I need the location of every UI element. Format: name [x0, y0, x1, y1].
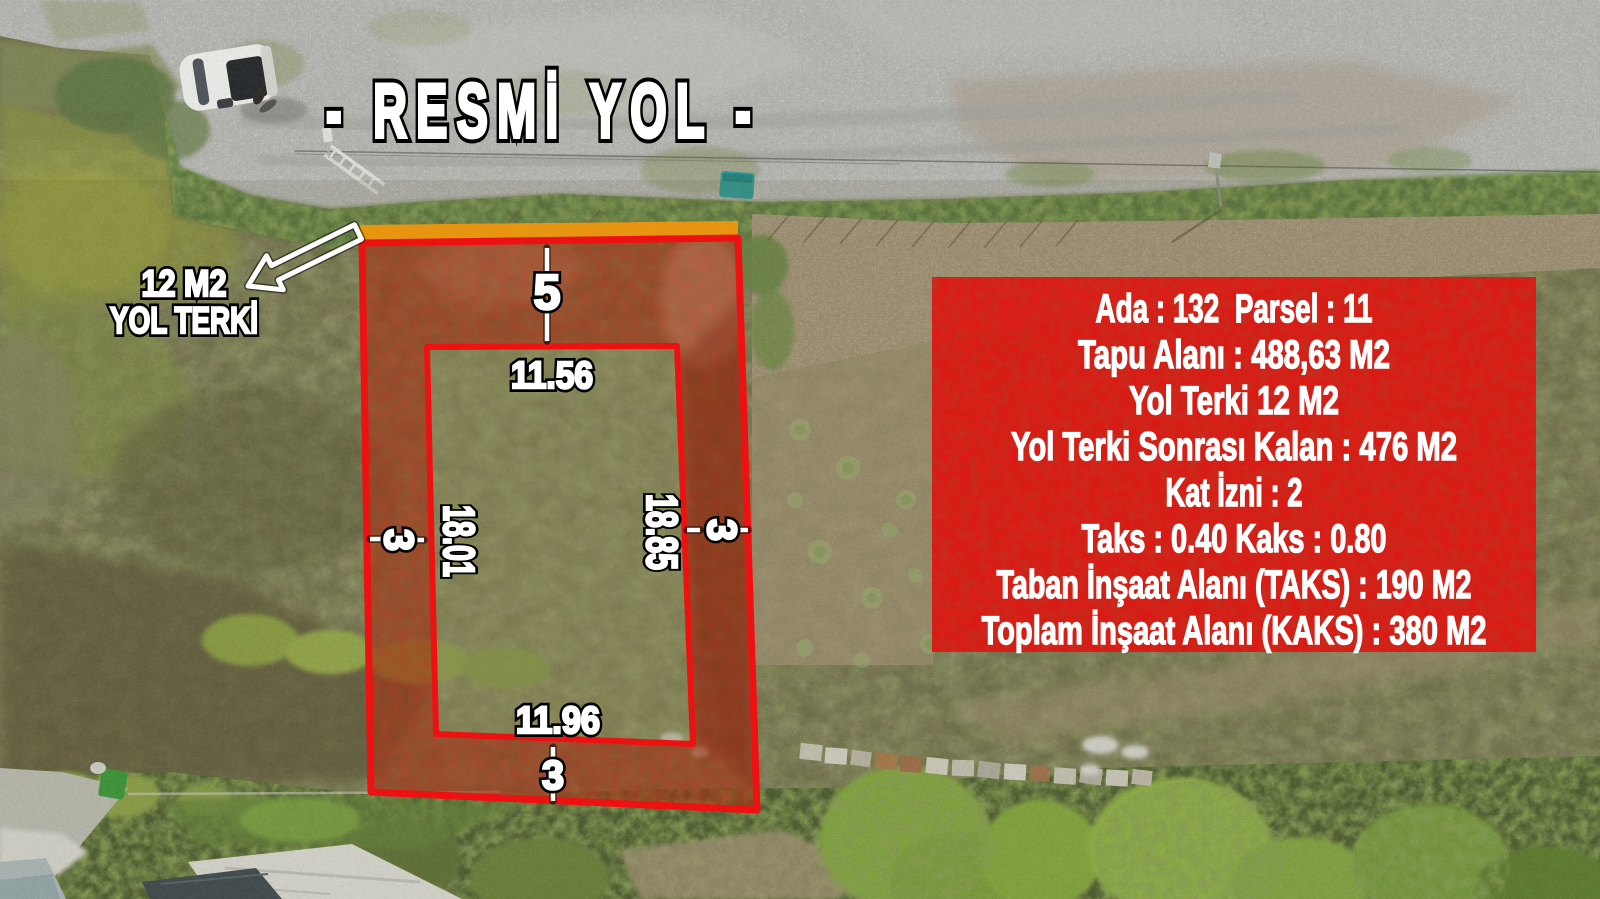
svg-text:Kat İzni : 2: Kat İzni : 2 [1166, 471, 1303, 515]
svg-text:Toplam İnşaat Alanı (KAKS) : 3: Toplam İnşaat Alanı (KAKS) : 380 M2 [982, 609, 1487, 653]
svg-text:5: 5 [534, 266, 561, 320]
svg-text:Tapu Alanı : 488,63 M2: Tapu Alanı : 488,63 M2 [1078, 333, 1390, 377]
svg-text:3: 3 [376, 529, 422, 551]
svg-text:18.01: 18.01 [434, 505, 483, 577]
svg-text:Yol Terki 12 M2: Yol Terki 12 M2 [1129, 379, 1339, 423]
svg-text:Ada : 132 Parsel : 11: Ada : 132 Parsel : 11 [1096, 287, 1373, 331]
svg-text:3: 3 [699, 519, 745, 541]
svg-text:YOL TERKİ: YOL TERKİ [110, 300, 258, 341]
svg-text:11.96: 11.96 [516, 700, 600, 742]
svg-text:Taban İnşaat Alanı (TAKS) : 19: Taban İnşaat Alanı (TAKS) : 190 M2 [997, 563, 1472, 607]
svg-text:Yol Terki Sonrası Kalan : 476: Yol Terki Sonrası Kalan : 476 M2 [1011, 425, 1457, 469]
svg-text:Taks : 0.40 Kaks : 0.80: Taks : 0.40 Kaks : 0.80 [1082, 517, 1387, 561]
svg-text:12 M2: 12 M2 [142, 263, 227, 304]
svg-text:11.56: 11.56 [511, 355, 593, 397]
svg-text:- RESMİ YOL -: - RESMİ YOL - [326, 69, 760, 154]
svg-text:18.85: 18.85 [637, 494, 686, 570]
svg-text:3: 3 [542, 752, 564, 798]
